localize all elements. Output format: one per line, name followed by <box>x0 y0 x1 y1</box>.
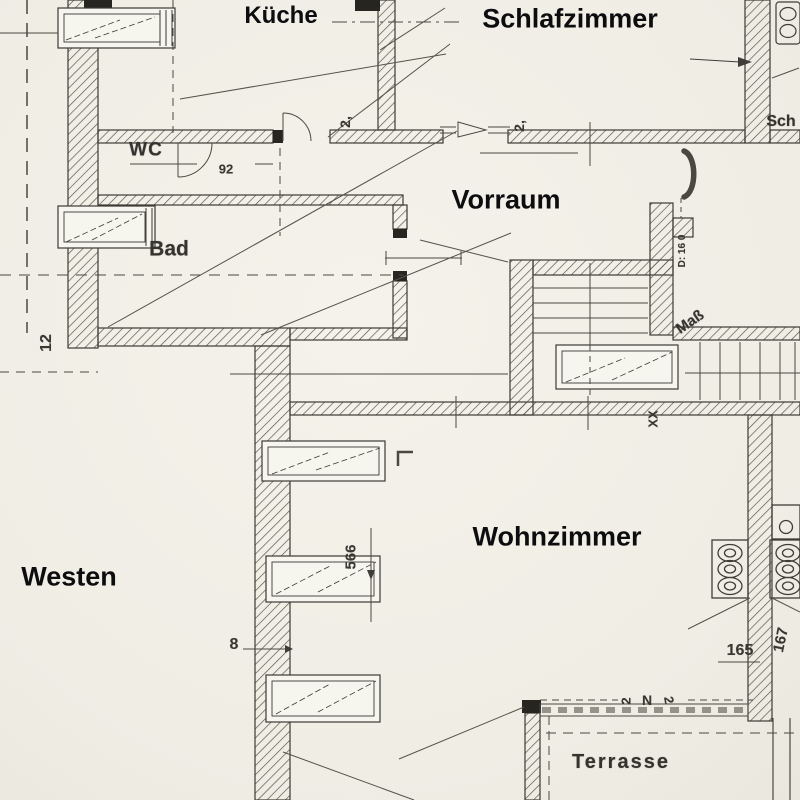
wall-right-stub <box>770 130 800 143</box>
wall-solid-blocks <box>84 0 541 713</box>
dim-stair-xx: XX <box>647 410 660 427</box>
window-west-1 <box>262 441 385 481</box>
room-label-vorraum: Vorraum <box>451 187 560 214</box>
dim-566: 566 <box>344 544 359 569</box>
window-bad <box>58 206 155 248</box>
dim-wall-8: 8 <box>230 637 239 653</box>
room-label-wohnzimmer: Wohnzimmer <box>472 524 641 551</box>
wall-right-lower <box>748 415 772 721</box>
room-label-bad: Bad <box>149 239 189 260</box>
wall-wc-south <box>98 195 403 205</box>
wall-stair-east <box>650 203 673 335</box>
dim-door-kueche: 2, <box>338 116 352 128</box>
window-west-3 <box>266 675 380 722</box>
windows <box>58 8 678 722</box>
wall-bad-south <box>98 328 290 346</box>
room-label-wc: WC <box>129 141 163 160</box>
wall-terrace <box>525 713 540 800</box>
wall-bad-south-ext <box>290 328 407 340</box>
corner-mark <box>398 452 413 466</box>
room-label-sch-partial: Sch <box>766 114 795 130</box>
floorplan-canvas: Küche Schlafzimmer Vorraum Wohnzimmer We… <box>0 0 800 800</box>
dim-stack-right: D: 16 0 <box>678 235 688 268</box>
wall-bad-east-upper <box>393 205 407 229</box>
floorplan-linework <box>0 0 800 800</box>
walls <box>68 0 800 800</box>
room-label-schlafzimmer: Schlafzimmer <box>482 6 658 33</box>
sink-symbol-top-right <box>776 2 800 44</box>
window-west-2 <box>266 556 380 602</box>
wall-kueche-south-a <box>98 130 273 143</box>
room-label-kueche: Küche <box>244 4 317 28</box>
room-label-terrasse: Terrasse <box>572 752 670 772</box>
window-stair-landing <box>556 345 678 389</box>
wall-left-outer <box>68 0 98 348</box>
window-kueche-west <box>58 8 175 48</box>
arrow-top-right <box>690 57 752 67</box>
door-schlaf-closet <box>681 151 694 218</box>
heater-left <box>712 540 748 598</box>
wall-wohnzimmer-north <box>290 402 800 415</box>
dim-terrace-2a: 2 <box>620 697 633 704</box>
wall-schlaf-south <box>508 130 745 143</box>
dim-door-entry: 2, <box>512 120 526 132</box>
door-wc <box>178 143 212 177</box>
wall-stair-west <box>510 260 533 415</box>
door-kueche <box>283 113 311 141</box>
dim-wc-width: 92 <box>219 163 233 176</box>
dim-165: 165 <box>727 643 754 659</box>
heater-right <box>770 505 800 598</box>
compass-label-westen: Westen <box>21 564 117 591</box>
dim-wall-12: 12 <box>39 334 55 352</box>
wall-kueche-south-b <box>330 130 443 143</box>
dim-terrace-n: N <box>642 693 652 707</box>
